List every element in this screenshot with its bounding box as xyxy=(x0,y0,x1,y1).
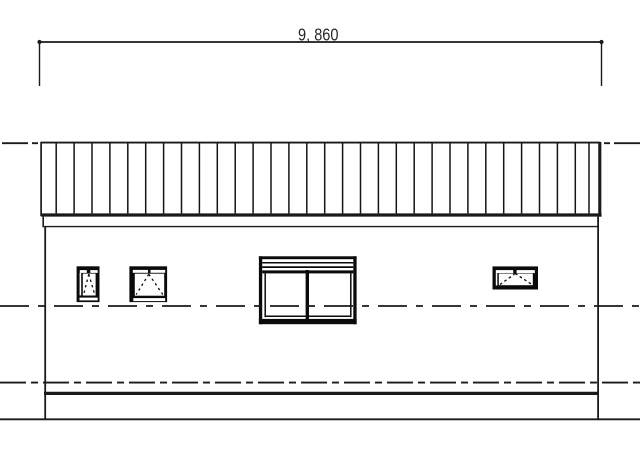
svg-text:9, 860: 9, 860 xyxy=(298,24,339,44)
